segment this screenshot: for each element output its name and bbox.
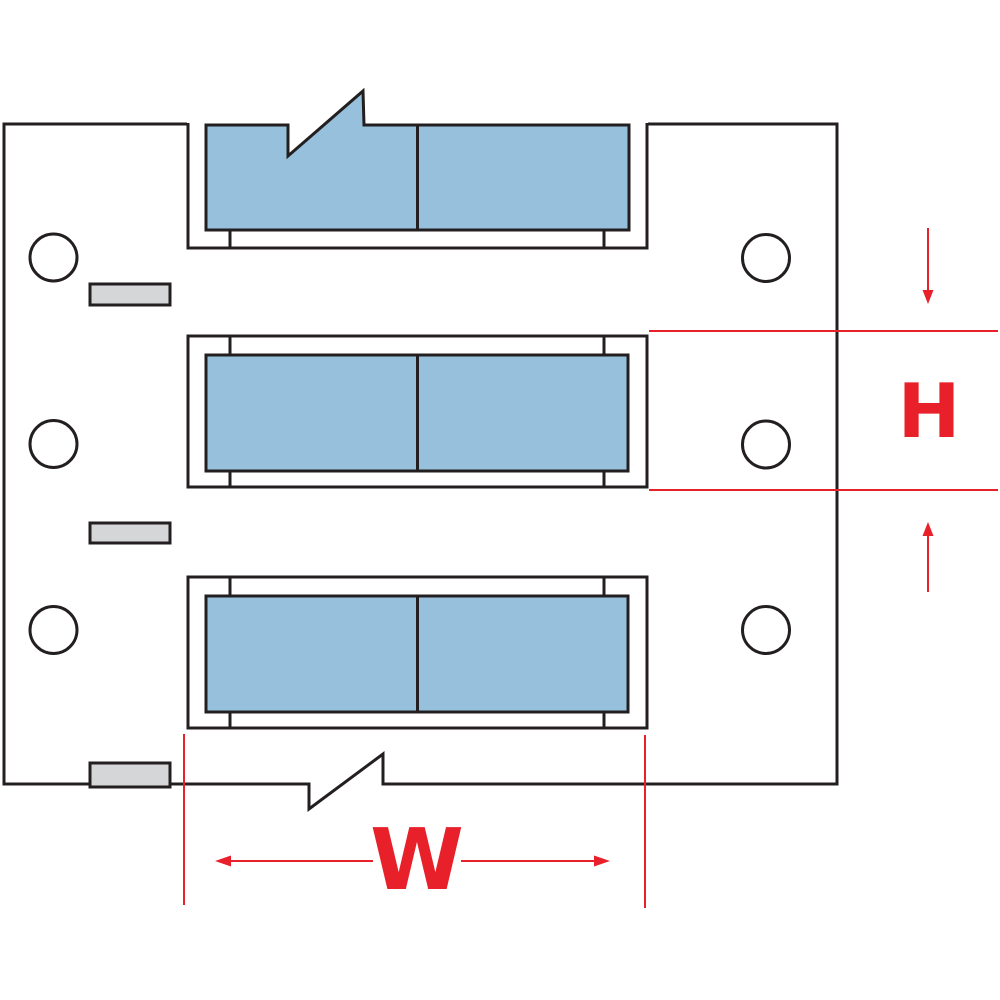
- height-label: H: [898, 367, 961, 455]
- h-dimension-arrow-down-icon: [923, 228, 934, 304]
- wire-sleeve-dimension-diagram: H W: [0, 0, 1000, 1000]
- feed-hole-left-top: [30, 234, 77, 281]
- width-label: W: [370, 811, 464, 910]
- registration-mark-top: [90, 284, 170, 305]
- h-dimension-arrow-up-icon: [923, 522, 934, 592]
- diagram-canvas: H W: [0, 0, 1000, 1000]
- row1-frame-tabs: [230, 231, 604, 248]
- w-dimension-arrow-right-icon: [461, 856, 610, 867]
- feed-hole-right-bottom: [743, 607, 790, 654]
- registration-mark-bottom: [90, 763, 170, 787]
- registration-mark-middle: [90, 523, 170, 543]
- feed-hole-left-bottom: [30, 607, 77, 654]
- feed-hole-right-middle: [743, 421, 790, 468]
- feed-hole-right-top: [743, 235, 790, 282]
- feed-hole-left-middle: [30, 421, 77, 468]
- w-dimension-arrow-left-icon: [215, 856, 373, 867]
